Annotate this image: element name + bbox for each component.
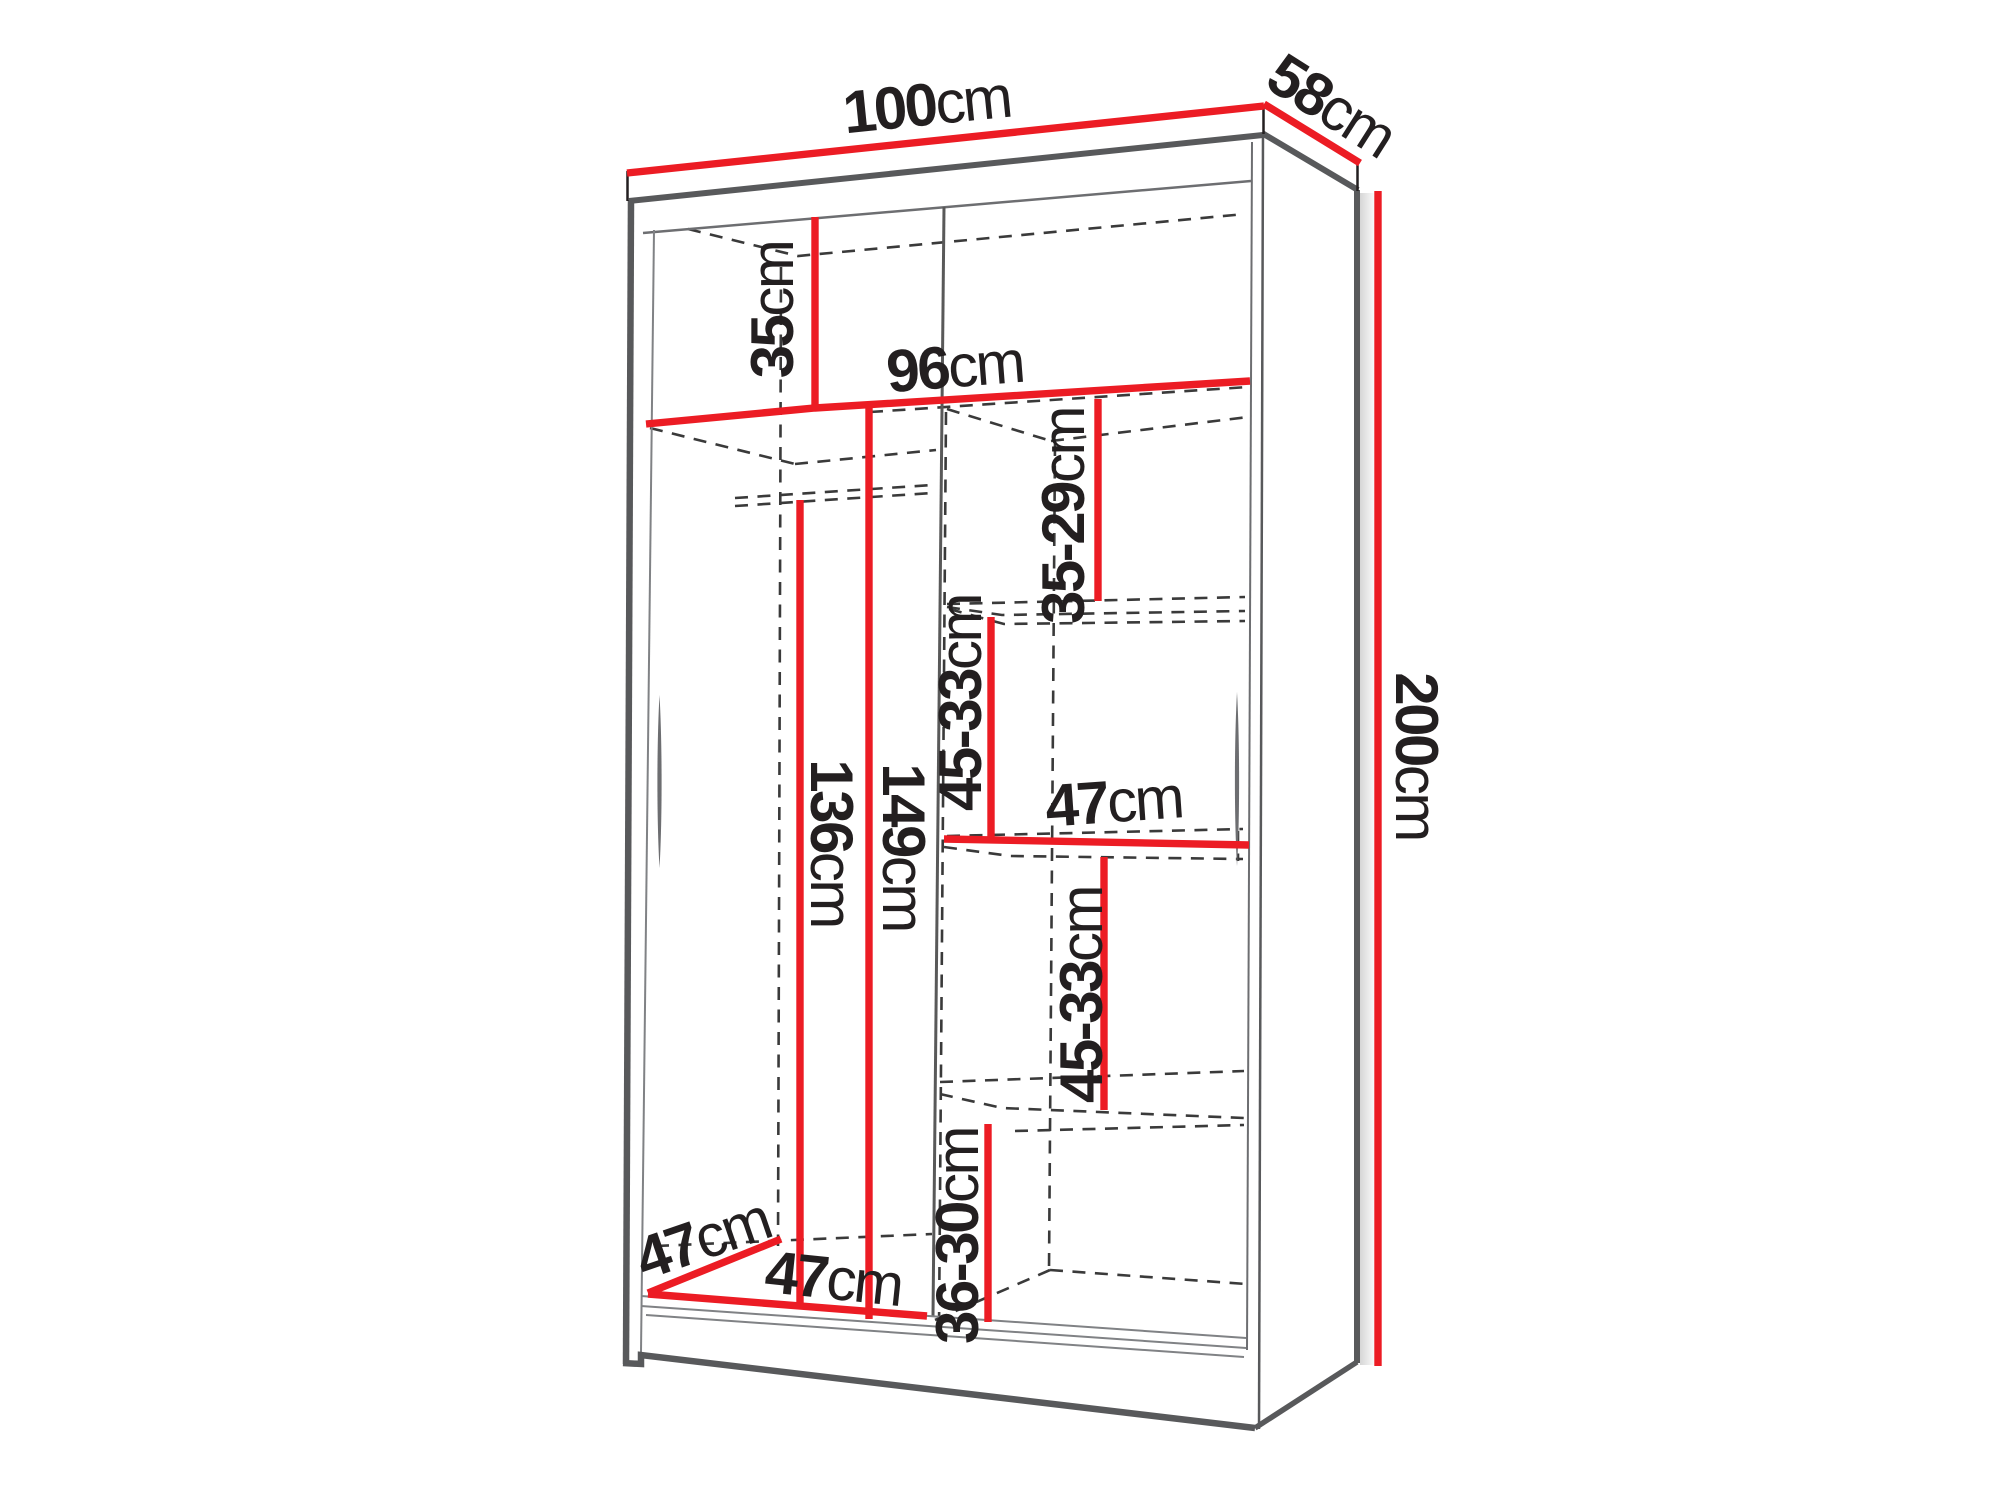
svg-text:45-33cm: 45-33cm xyxy=(927,595,994,811)
svg-text:47cm: 47cm xyxy=(762,1238,905,1319)
svg-text:136cm: 136cm xyxy=(798,759,865,927)
svg-text:36-30cm: 36-30cm xyxy=(924,1128,991,1344)
svg-text:96cm: 96cm xyxy=(884,328,1026,406)
svg-text:200cm: 200cm xyxy=(1383,672,1450,840)
svg-text:45-33cm: 45-33cm xyxy=(1048,887,1115,1103)
svg-text:47cm: 47cm xyxy=(1043,763,1184,839)
svg-text:35-29cm: 35-29cm xyxy=(1030,408,1097,624)
svg-text:35cm: 35cm xyxy=(739,242,806,379)
